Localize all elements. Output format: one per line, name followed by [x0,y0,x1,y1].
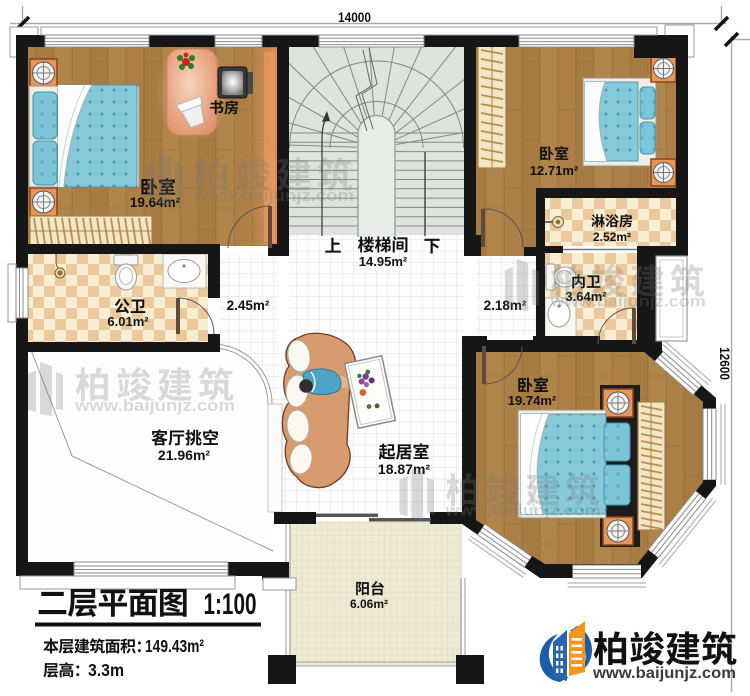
svg-text:12.71m²: 12.71m² [530,163,579,178]
svg-text:www.baijunjz.com: www.baijunjz.com [444,502,600,519]
svg-text:14000: 14000 [338,9,371,25]
svg-text:www.baijunjz.com: www.baijunjz.com [193,187,354,205]
svg-text:www.baijunjz.com: www.baijunjz.com [74,397,235,415]
svg-text:6.01m²: 6.01m² [107,314,149,329]
svg-text:12600: 12600 [717,347,733,380]
svg-text:6.06m²: 6.06m² [350,597,388,611]
svg-text:149.43m²: 149.43m² [145,636,204,656]
svg-text:14.95m²: 14.95m² [359,254,408,269]
svg-text:21.96m²: 21.96m² [158,447,210,463]
svg-text:1:100: 1:100 [204,588,257,621]
svg-text:2.52m²: 2.52m² [593,230,631,244]
svg-text:www.baijunjz.com: www.baijunjz.com [592,665,736,682]
svg-text:3.3m: 3.3m [88,660,124,680]
svg-text:2.45m²: 2.45m² [227,298,270,313]
svg-text:www.baijunjz.com: www.baijunjz.com [549,293,705,310]
svg-text:19.74m²: 19.74m² [508,393,557,408]
svg-text:19.64m²: 19.64m² [130,195,181,210]
